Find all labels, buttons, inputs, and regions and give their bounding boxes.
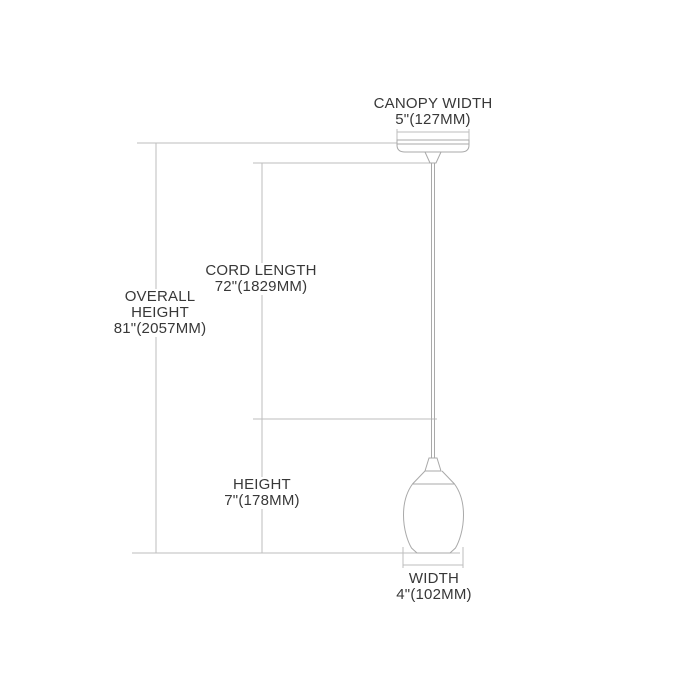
shade-height-title: HEIGHT xyxy=(224,477,299,493)
canopy-width-value: 5"(127MM) xyxy=(374,112,493,128)
cord-grip-outline xyxy=(425,152,441,163)
cord-length-value: 72"(1829MM) xyxy=(205,279,316,295)
pendant-dimension-diagram: CANOPY WIDTH 5"(127MM) OVERALL HEIGHT 81… xyxy=(0,0,700,700)
cord-lines xyxy=(432,163,435,458)
socket-outline xyxy=(425,458,441,471)
cord-length-label: CORD LENGTH 72"(1829MM) xyxy=(202,263,319,295)
canopy-outline xyxy=(397,140,469,152)
shade-shape xyxy=(404,458,464,553)
canopy-width-bracket xyxy=(397,129,469,141)
overall-height-title-line2: HEIGHT xyxy=(114,305,207,321)
shade-height-value: 7"(178MM) xyxy=(224,493,299,509)
shade-width-label: WIDTH 4"(102MM) xyxy=(393,571,474,603)
overall-height-label: OVERALL HEIGHT 81"(2057MM) xyxy=(111,289,210,337)
shade-width-value: 4"(102MM) xyxy=(396,587,471,603)
cord-shape xyxy=(432,163,435,458)
overall-height-title-line1: OVERALL xyxy=(114,289,207,305)
cord-length-title: CORD LENGTH xyxy=(205,263,316,279)
glass-shade-outline xyxy=(404,471,464,553)
shade-width-title: WIDTH xyxy=(396,571,471,587)
canopy-width-title: CANOPY WIDTH xyxy=(374,96,493,112)
line-drawing xyxy=(0,0,700,700)
canopy-shape xyxy=(397,140,469,163)
canopy-width-label: CANOPY WIDTH 5"(127MM) xyxy=(371,96,496,128)
shade-width-bracket xyxy=(403,547,463,568)
overall-height-value: 81"(2057MM) xyxy=(114,321,207,337)
shade-height-label: HEIGHT 7"(178MM) xyxy=(221,477,302,509)
